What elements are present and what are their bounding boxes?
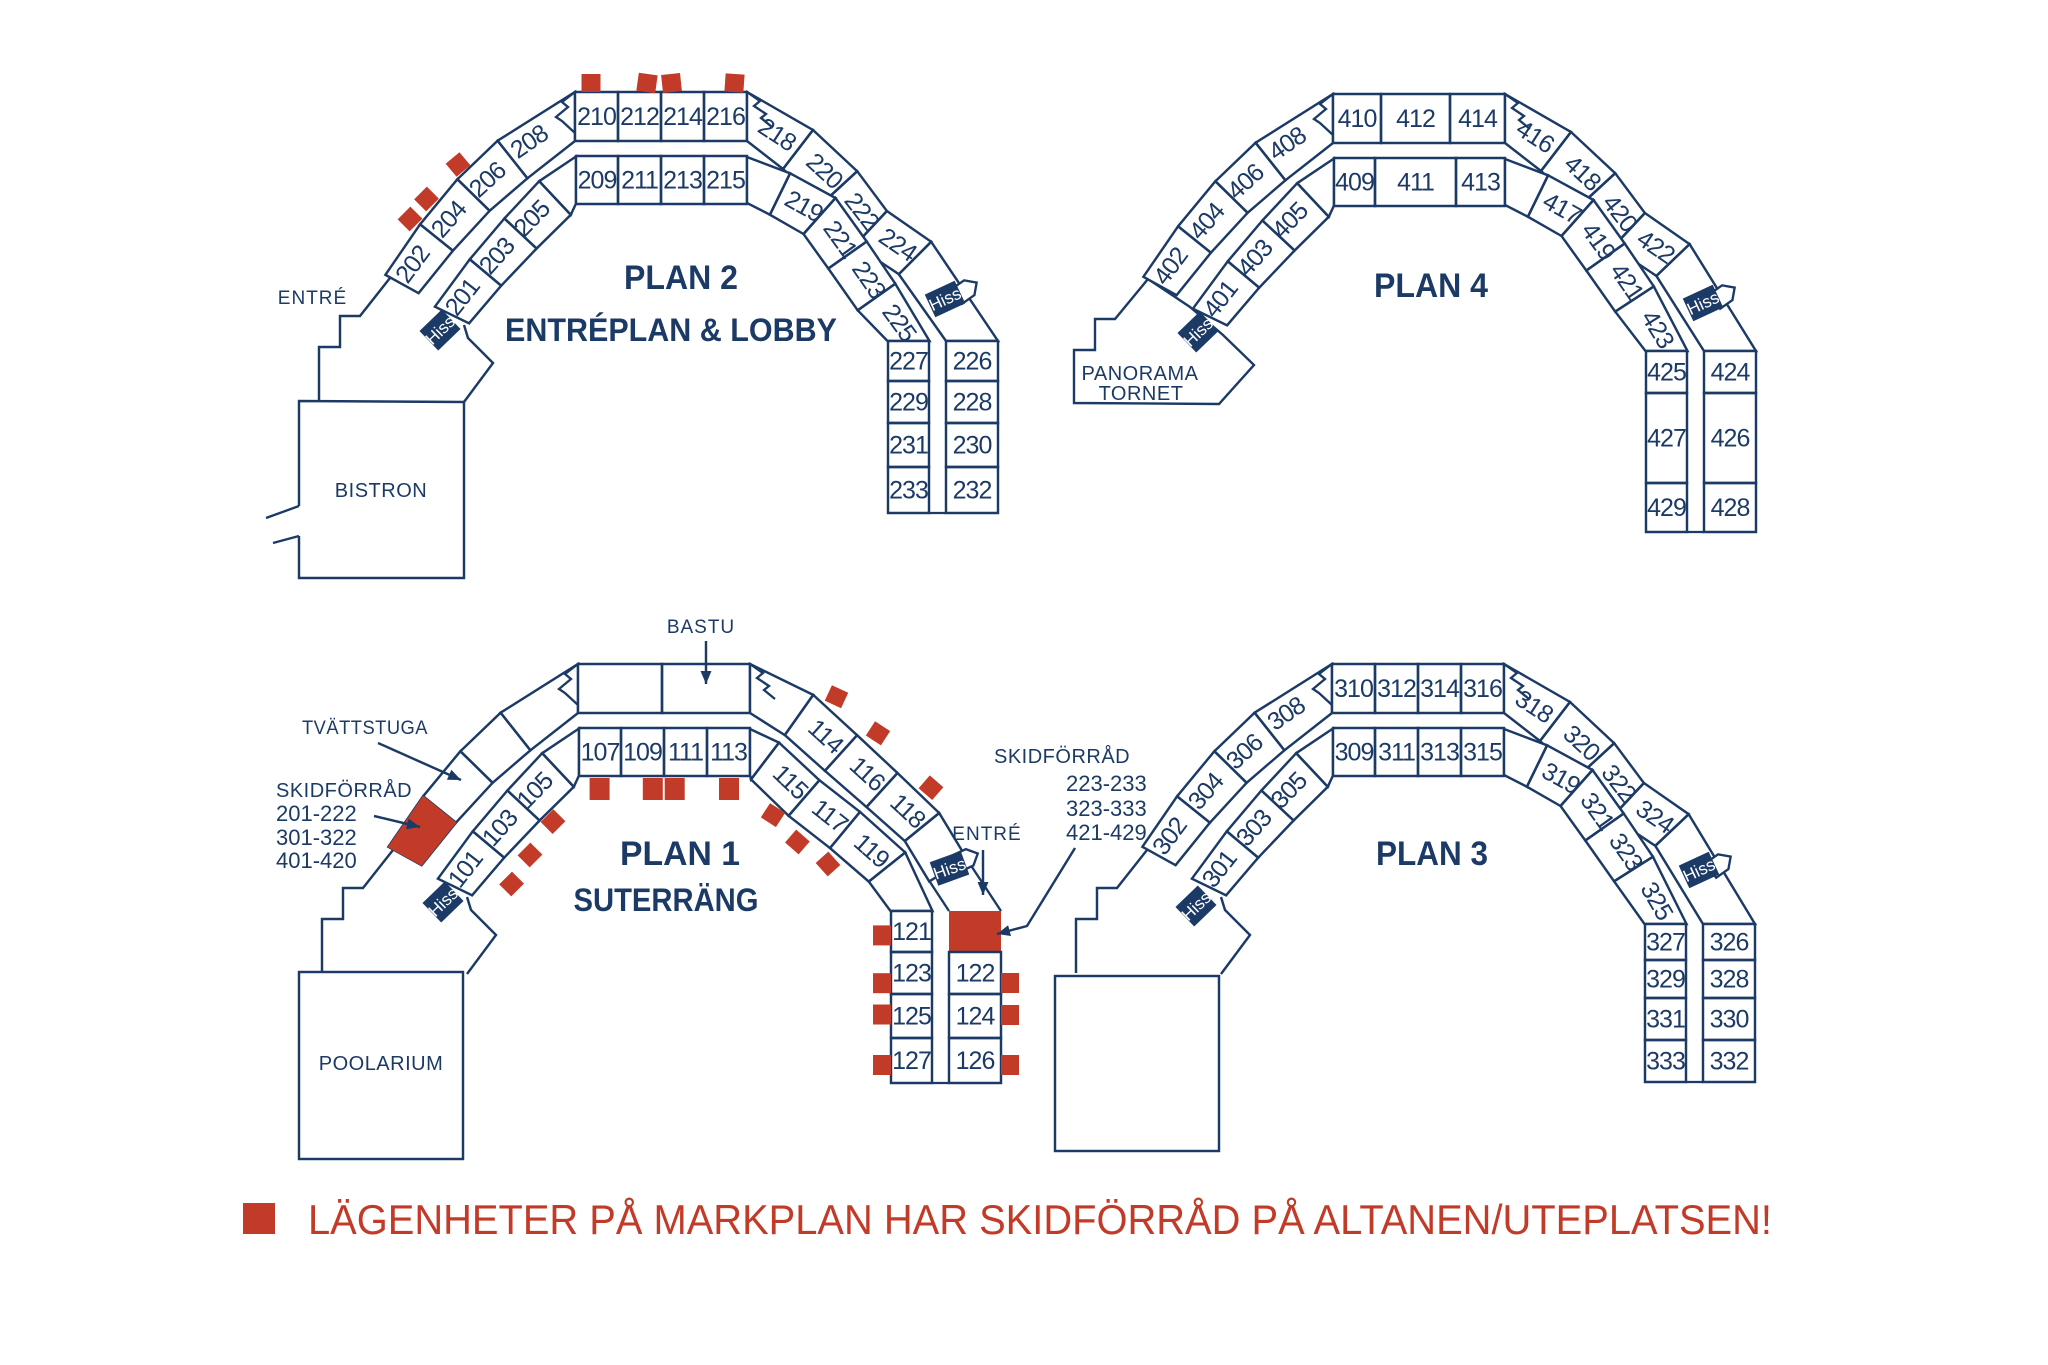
svg-text:429: 429 [1647, 494, 1686, 522]
svg-text:SUTERRÄNG: SUTERRÄNG [574, 882, 759, 918]
svg-text:329: 329 [1646, 966, 1685, 994]
svg-text:SKIDFÖRRÅD: SKIDFÖRRÅD [994, 745, 1130, 768]
svg-text:233: 233 [889, 477, 928, 505]
svg-text:PLAN 3: PLAN 3 [1376, 835, 1488, 873]
svg-text:ENTRÉ: ENTRÉ [952, 824, 1021, 845]
svg-text:428: 428 [1711, 494, 1750, 522]
svg-text:230: 230 [953, 432, 992, 460]
svg-text:410: 410 [1338, 105, 1377, 133]
svg-text:126: 126 [956, 1047, 995, 1075]
svg-text:TVÄTTSTUGA: TVÄTTSTUGA [302, 718, 428, 739]
svg-text:BISTRON: BISTRON [335, 480, 427, 502]
svg-text:TORNET: TORNET [1099, 383, 1184, 405]
svg-text:201-222: 201-222 [276, 801, 357, 826]
svg-text:424: 424 [1711, 359, 1751, 387]
svg-text:215: 215 [706, 167, 745, 195]
svg-text:125: 125 [892, 1003, 931, 1031]
svg-text:209: 209 [578, 167, 617, 195]
svg-text:232: 232 [953, 477, 992, 505]
svg-text:PLAN 4: PLAN 4 [1374, 267, 1488, 305]
svg-text:227: 227 [889, 348, 928, 376]
svg-text:LÄGENHETER PÅ MARKPLAN HAR SKI: LÄGENHETER PÅ MARKPLAN HAR SKIDFÖRRÅD PÅ… [308, 1196, 1772, 1243]
svg-text:311: 311 [1378, 739, 1415, 767]
svg-text:327: 327 [1646, 929, 1685, 957]
svg-text:210: 210 [577, 103, 616, 131]
svg-text:211: 211 [621, 167, 658, 195]
svg-text:411: 411 [1397, 169, 1434, 197]
svg-text:122: 122 [956, 960, 995, 988]
svg-text:123: 123 [892, 960, 931, 988]
svg-text:330: 330 [1710, 1006, 1749, 1034]
svg-text:309: 309 [1335, 739, 1374, 767]
svg-text:310: 310 [1334, 675, 1373, 703]
svg-text:216: 216 [706, 103, 745, 131]
svg-text:ENTRÉPLAN & LOBBY: ENTRÉPLAN & LOBBY [505, 312, 837, 348]
svg-text:PLAN 2: PLAN 2 [624, 259, 738, 297]
svg-text:323-333: 323-333 [1066, 796, 1147, 821]
svg-text:315: 315 [1463, 739, 1502, 767]
svg-text:212: 212 [620, 103, 659, 131]
svg-text:BASTU: BASTU [667, 617, 735, 638]
svg-text:413: 413 [1461, 169, 1500, 197]
svg-text:PANORAMA: PANORAMA [1082, 363, 1199, 385]
svg-text:412: 412 [1396, 105, 1435, 133]
svg-text:223-233: 223-233 [1066, 771, 1147, 796]
svg-text:111: 111 [668, 739, 703, 767]
svg-text:228: 228 [953, 389, 992, 417]
svg-text:213: 213 [663, 167, 702, 195]
svg-text:421-429: 421-429 [1066, 820, 1147, 845]
svg-text:331: 331 [1646, 1006, 1685, 1034]
svg-text:PLAN 1: PLAN 1 [620, 835, 740, 873]
svg-text:107: 107 [581, 739, 620, 767]
svg-text:109: 109 [623, 739, 662, 767]
svg-text:314: 314 [1420, 675, 1460, 703]
svg-text:414: 414 [1458, 105, 1498, 133]
svg-text:326: 326 [1710, 929, 1749, 957]
svg-text:426: 426 [1711, 425, 1750, 453]
svg-text:301-322: 301-322 [276, 825, 357, 850]
svg-text:SKIDFÖRRÅD: SKIDFÖRRÅD [276, 779, 412, 802]
svg-text:127: 127 [892, 1047, 931, 1075]
svg-text:409: 409 [1335, 169, 1374, 197]
svg-text:226: 226 [953, 348, 992, 376]
svg-text:POOLARIUM: POOLARIUM [319, 1053, 444, 1075]
svg-text:425: 425 [1647, 359, 1686, 387]
svg-text:401-420: 401-420 [276, 848, 357, 873]
svg-text:121: 121 [892, 918, 931, 946]
svg-text:313: 313 [1420, 739, 1459, 767]
svg-text:316: 316 [1463, 675, 1502, 703]
svg-text:333: 333 [1646, 1048, 1685, 1076]
svg-text:427: 427 [1647, 425, 1686, 453]
svg-text:328: 328 [1710, 966, 1749, 994]
svg-text:312: 312 [1377, 675, 1416, 703]
svg-text:229: 229 [889, 389, 928, 417]
svg-text:124: 124 [956, 1003, 996, 1031]
svg-text:113: 113 [710, 739, 747, 767]
svg-text:214: 214 [663, 103, 703, 131]
svg-text:231: 231 [889, 432, 928, 460]
svg-text:332: 332 [1710, 1048, 1749, 1076]
svg-text:ENTRÉ: ENTRÉ [278, 288, 347, 309]
